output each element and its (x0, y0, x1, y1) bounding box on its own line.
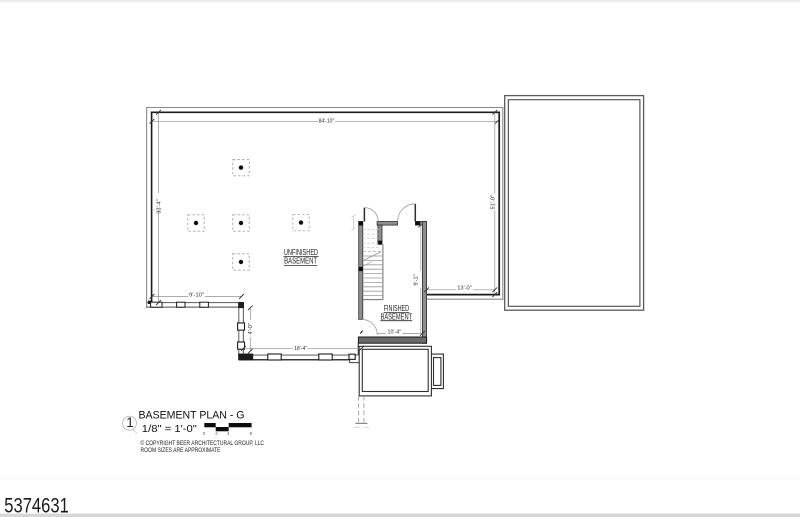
svg-text:9'-10": 9'-10" (189, 293, 204, 299)
svg-text:84'-10": 84'-10" (319, 119, 335, 125)
svg-text:1/8" = 1'-0": 1/8" = 1'-0" (142, 424, 197, 435)
svg-text:9'-1": 9'-1" (413, 274, 419, 285)
svg-text:4'-0": 4'-0" (248, 323, 254, 334)
svg-text:13'-0": 13'-0" (457, 285, 472, 291)
svg-text:10'-4": 10'-4" (388, 329, 402, 335)
svg-text:© COPYRIGHT BEER ARCHITECTURAL: © COPYRIGHT BEER ARCHITECTURAL GROUP, LL… (141, 439, 265, 447)
svg-text:ROOM SIZES ARE APPROXIMATE: ROOM SIZES ARE APPROXIMATE (141, 447, 221, 454)
svg-text:BASEMENT PLAN - G: BASEMENT PLAN - G (139, 410, 245, 422)
svg-text:5374631: 5374631 (4, 494, 69, 517)
svg-text:UNFINISHED: UNFINISHED (284, 248, 318, 257)
svg-text:BASEMENT: BASEMENT (284, 257, 317, 266)
svg-text:51'-0": 51'-0" (491, 195, 497, 210)
svg-text:1: 1 (126, 415, 134, 430)
svg-text:33'-4": 33'-4" (156, 199, 162, 214)
svg-text:18'-4": 18'-4" (294, 346, 307, 352)
svg-text:BASEMENT: BASEMENT (381, 312, 413, 321)
